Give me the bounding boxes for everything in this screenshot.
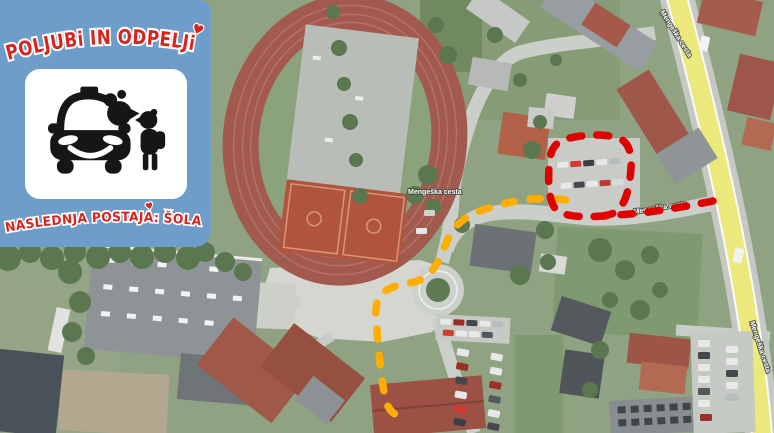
basketball-courts — [278, 179, 408, 265]
street-label: Mengeška cesta — [408, 189, 462, 196]
wheel-left — [57, 159, 74, 174]
heart-icon: ♥ — [145, 201, 155, 212]
svg-text:NASLEDNJA POSTAJA: ŠOLA: NASLEDNJA POSTAJA: ŠOLA — [4, 210, 202, 236]
kiss-and-drive-panel: POLJUBi IN ODPELJi ♥ — [0, 0, 211, 247]
car-antenna — [80, 87, 98, 96]
flyer: Mengeška cesta Mengeška cesta Mengeška c… — [0, 0, 774, 433]
concrete-pad — [286, 24, 419, 197]
panel-caption: NASLEDNJA POSTAJA: ŠOLA ♥ — [0, 198, 211, 244]
kiss-and-ride-icon — [31, 81, 181, 187]
backpack — [155, 131, 165, 149]
panel-title-text: POLJUBi IN ODPELJi — [3, 25, 197, 65]
panel-caption-text: NASLEDNJA POSTAJA: ŠOLA — [4, 210, 202, 236]
kiss-and-ride-card — [25, 69, 187, 199]
svg-text:POLJUBi IN ODPELJi: POLJUBi IN ODPELJi — [3, 25, 197, 65]
child-figure — [135, 109, 165, 170]
roundabout — [412, 264, 464, 316]
panel-title: POLJUBi IN ODPELJi ♥ — [0, 8, 211, 78]
parent-figure — [104, 90, 140, 126]
wheel-right — [105, 159, 122, 174]
